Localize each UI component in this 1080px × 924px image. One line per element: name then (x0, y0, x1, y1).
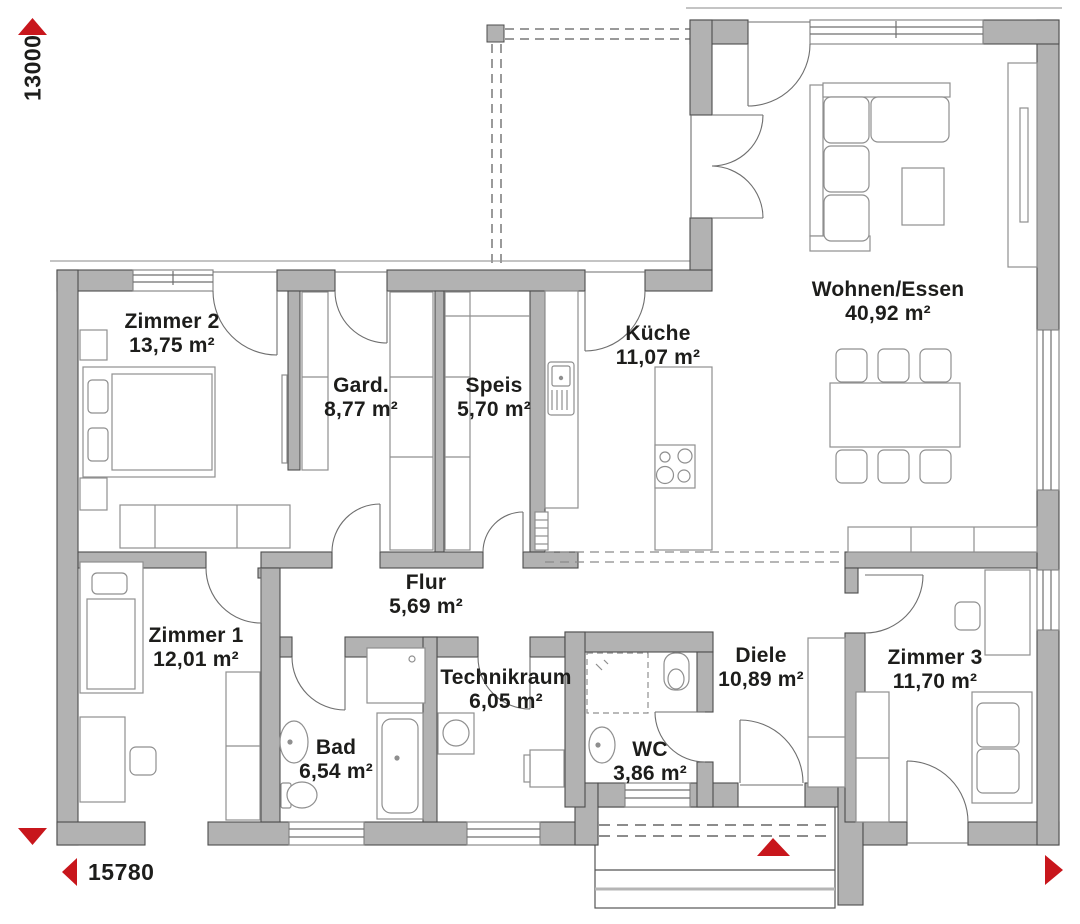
room-area: 13,75 m² (129, 334, 215, 357)
dimension-arrow-right-icon (1045, 855, 1063, 885)
room-label-zimmer1: Zimmer 1 12,01 m² (149, 624, 244, 672)
room-area: 5,70 m² (457, 398, 531, 421)
window-wohnen-east (1037, 330, 1059, 490)
room-area: 40,92 m² (845, 302, 931, 325)
floor-plan-drawing (0, 0, 1080, 924)
terrace-outline (492, 29, 690, 268)
room-name: Diele (735, 644, 786, 667)
room-area: 5,69 m² (389, 595, 463, 618)
furniture-zimmer1 (80, 562, 260, 820)
room-name: Zimmer 1 (149, 624, 244, 647)
room-area: 10,89 m² (718, 668, 804, 691)
room-label-speis: Speis 5,70 m² (457, 374, 531, 422)
dimension-vertical: 13000 (20, 35, 47, 101)
window-bad-south (289, 822, 364, 845)
room-name: Zimmer 3 (888, 646, 983, 669)
window-wc-south (625, 783, 690, 807)
room-name: Bad (316, 736, 356, 759)
window-zimmer2-north (133, 270, 213, 291)
room-name: Küche (625, 322, 690, 345)
room-label-bad: Bad 6,54 m² (299, 736, 373, 784)
furniture-zimmer2 (80, 330, 290, 548)
room-label-kueche: Küche 11,07 m² (616, 322, 701, 370)
window-wohnen-north (810, 20, 983, 44)
room-label-wohnen-essen: Wohnen/Essen 40,92 m² (812, 278, 965, 326)
room-label-flur: Flur 5,69 m² (389, 571, 463, 619)
room-name: Gard. (333, 374, 389, 397)
window-technikraum-south (467, 822, 540, 845)
furniture-zimmer3 (856, 570, 1032, 822)
room-area: 6,05 m² (469, 690, 543, 713)
room-label-technikraum: Technikraum 6,05 m² (440, 666, 571, 714)
kitchen-open-boundary (545, 552, 845, 562)
floor-plan: 13000 15780 Zimmer 2 13,75 m² Gard. 8,77… (0, 0, 1080, 924)
room-name: WC (632, 738, 667, 761)
furniture-diele (808, 638, 845, 787)
entrance-porch (595, 807, 835, 908)
furniture-bad (280, 648, 425, 819)
room-area: 11,07 m² (616, 346, 701, 369)
furniture-technikraum (438, 713, 564, 787)
room-name: Speis (465, 374, 522, 397)
room-label-diele: Diele 10,89 m² (718, 644, 804, 692)
room-area: 3,86 m² (613, 762, 687, 785)
terrace-post (487, 25, 504, 42)
room-name: Technikraum (440, 666, 571, 689)
room-label-gard: Gard. 8,77 m² (324, 374, 398, 422)
dimension-arrow-down-icon (18, 828, 47, 845)
room-area: 8,77 m² (324, 398, 398, 421)
dimension-arrow-up-icon (18, 18, 47, 35)
room-name: Flur (406, 571, 446, 594)
room-name: Wohnen/Essen (812, 278, 965, 301)
room-area: 12,01 m² (153, 648, 239, 671)
room-label-zimmer2: Zimmer 2 13,75 m² (125, 310, 220, 358)
dimension-arrow-left-icon (62, 858, 77, 886)
room-area: 11,70 m² (893, 670, 978, 693)
room-name: Zimmer 2 (125, 310, 220, 333)
room-label-zimmer3: Zimmer 3 11,70 m² (888, 646, 983, 694)
window-zimmer3-east (1037, 570, 1059, 630)
room-label-wc: WC 3,86 m² (613, 738, 687, 786)
room-area: 6,54 m² (299, 760, 373, 783)
dimension-horizontal: 15780 (88, 859, 154, 886)
